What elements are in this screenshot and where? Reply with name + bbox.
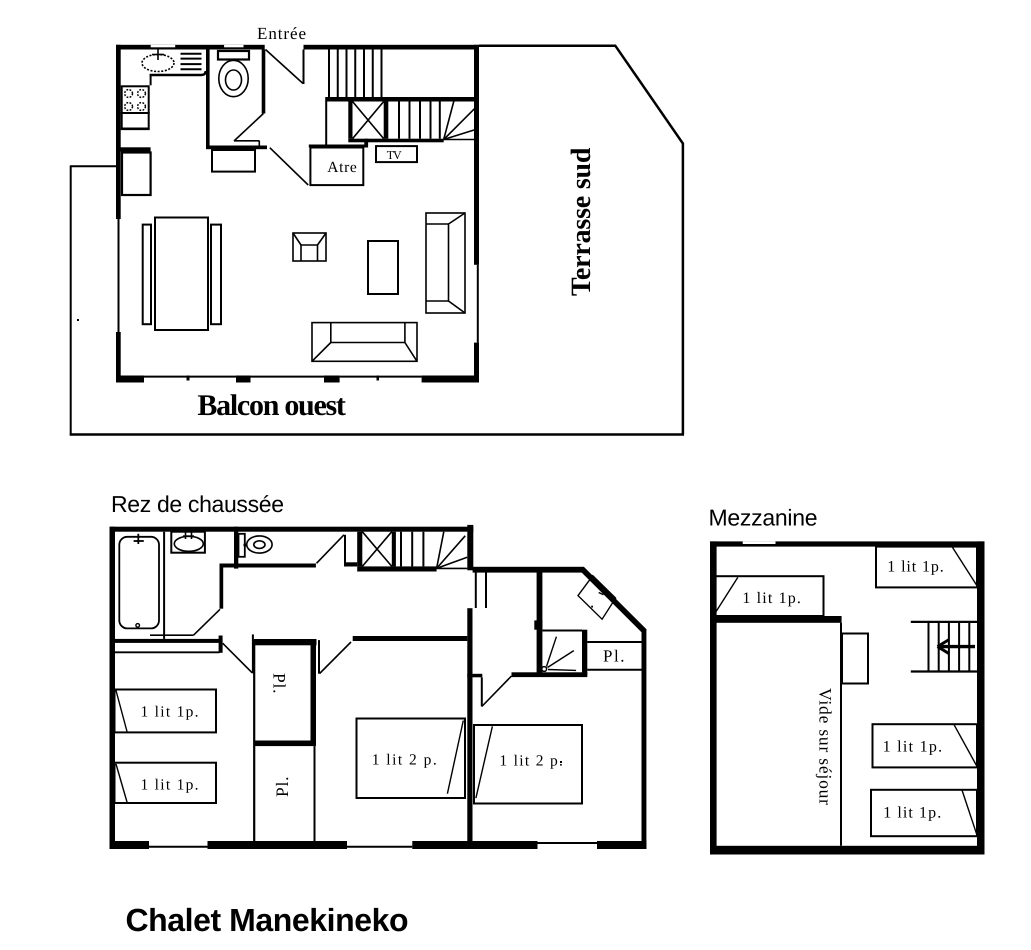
svg-text:Rez de chaussée: Rez de chaussée xyxy=(111,491,284,517)
svg-text:Pl.: Pl. xyxy=(603,647,625,666)
svg-text:1 lit 1p.: 1 lit 1p. xyxy=(742,590,801,607)
svg-text:Entrée: Entrée xyxy=(257,24,306,43)
svg-text:1 lit 1p.: 1 lit 1p. xyxy=(141,777,199,794)
svg-text:1 lit 2 p.: 1 lit 2 p. xyxy=(372,751,437,768)
svg-text:Pl.: Pl. xyxy=(272,777,292,798)
svg-text:TV: TV xyxy=(387,148,402,162)
svg-text:Balcon ouest: Balcon ouest xyxy=(197,389,346,422)
svg-text:Mezzanine: Mezzanine xyxy=(709,505,818,531)
svg-text:1 lit 1p.: 1 lit 1p. xyxy=(141,704,199,721)
svg-text:Atre: Atre xyxy=(327,159,357,176)
svg-text:1 lit 1p.: 1 lit 1p. xyxy=(883,805,941,822)
svg-text:1 lit 1p.: 1 lit 1p. xyxy=(887,559,944,576)
svg-text:1 lit 2 p.: 1 lit 2 p. xyxy=(499,752,563,769)
svg-text:1 lit 1p.: 1 lit 1p. xyxy=(883,739,943,756)
svg-text:Terrasse sud: Terrasse sud xyxy=(566,147,597,296)
svg-text:Chalet Manekineko: Chalet Manekineko xyxy=(126,902,409,938)
svg-text:Pl.: Pl. xyxy=(270,673,290,694)
svg-text:Vide sur séjour: Vide sur séjour xyxy=(816,688,836,805)
